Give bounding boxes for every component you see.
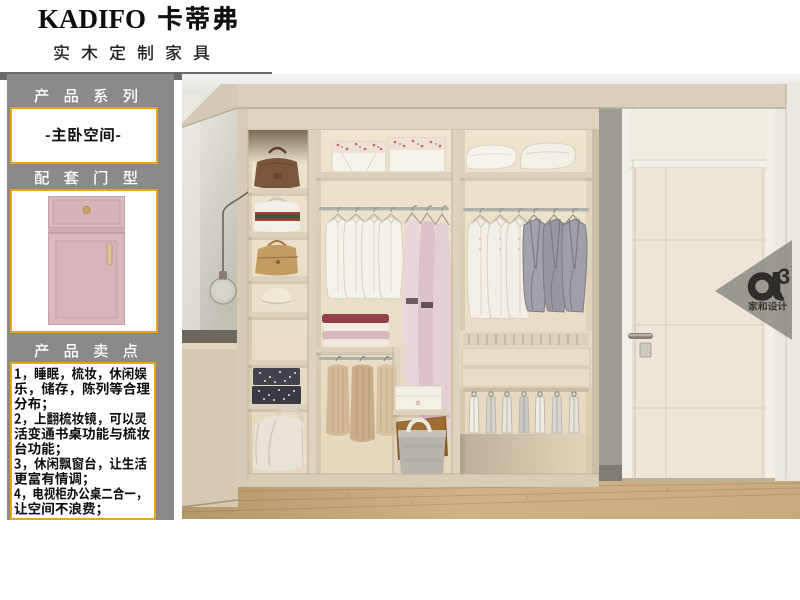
svg-text:3: 3 — [778, 264, 790, 289]
